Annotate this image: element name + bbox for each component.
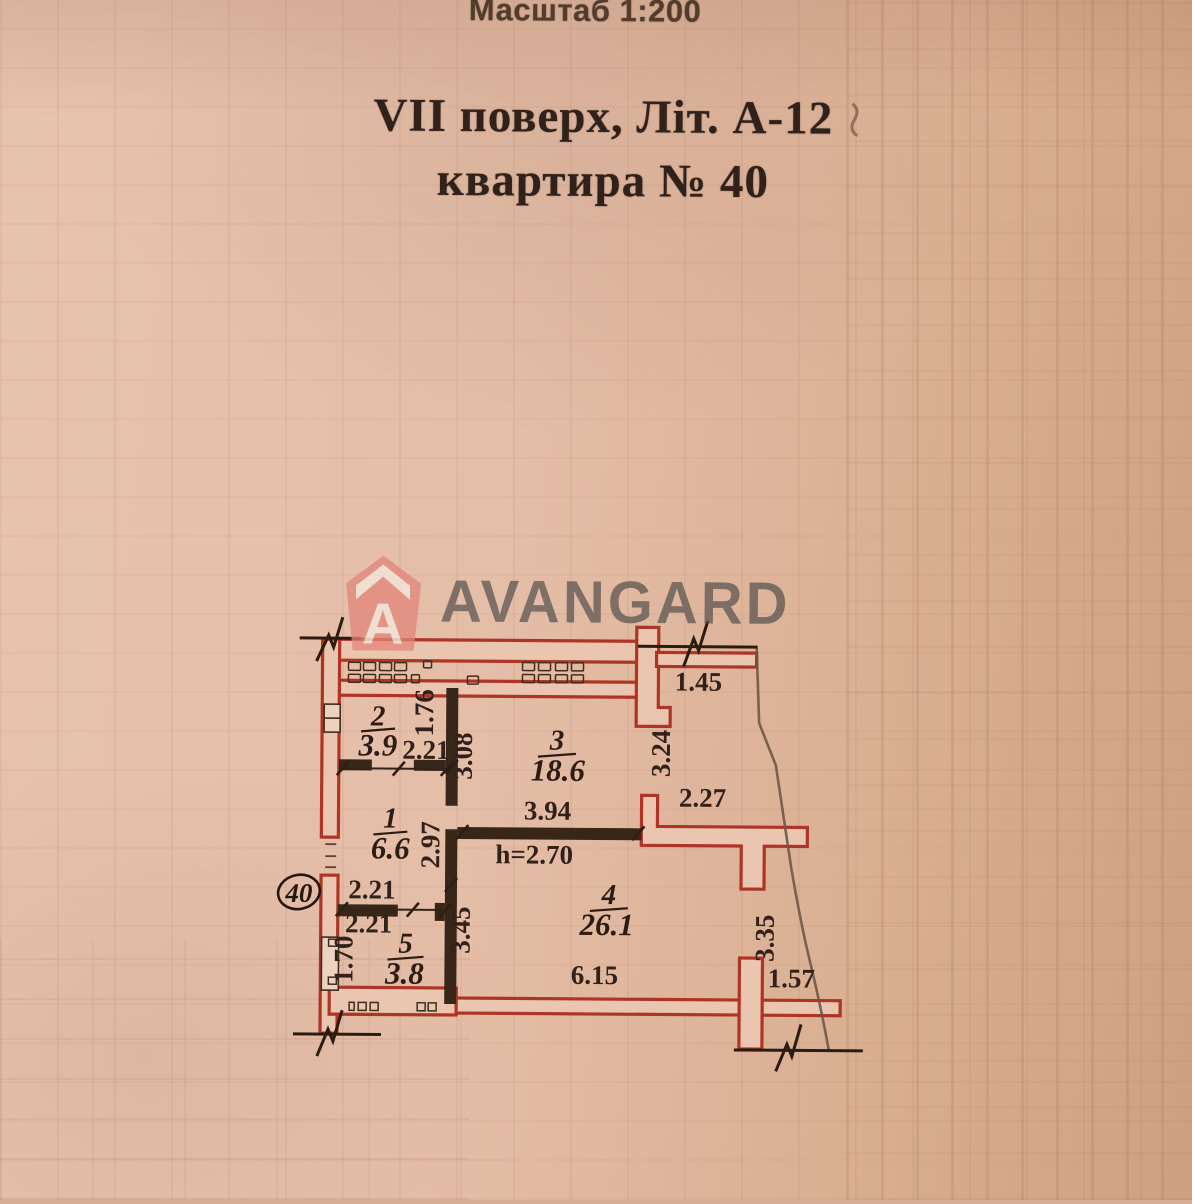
wall-pier-top xyxy=(636,627,671,726)
dim-room3-left-depth: 3.08 xyxy=(448,732,478,779)
dim-niche-width: 2.27 xyxy=(679,783,726,813)
wall-bottom-main xyxy=(456,998,840,1016)
dim-room5-width-upper: 2.21 xyxy=(348,874,395,904)
dim-balcony-right-depth: 3.35 xyxy=(749,914,779,961)
dim-room4-width: 6.15 xyxy=(571,960,618,990)
floor-plan-sheet: Масштаб 1:200 VII поверх, Літ. А-12 квар… xyxy=(0,0,1192,1204)
ceiling-height-note: h=2.70 xyxy=(495,839,573,870)
entrance-door-opening xyxy=(325,844,336,867)
dim-balcony-bottom-width: 1.57 xyxy=(768,963,815,993)
partition-room3-room4 xyxy=(457,827,641,840)
dim-balcony-top-depth: 3.24 xyxy=(646,730,676,777)
room-area: 6.6 xyxy=(371,830,410,865)
room-label-4: 4 26.1 xyxy=(578,879,634,942)
room-area: 26.1 xyxy=(578,907,633,942)
dim-balcony-top-width: 1.45 xyxy=(675,667,722,697)
dim-room2-width: 2.21 xyxy=(402,735,449,765)
room-label-1: 1 6.6 xyxy=(371,802,411,865)
wall-top-outer xyxy=(323,639,643,662)
balcony-window-top xyxy=(657,652,757,667)
dim-room3-width: 3.94 xyxy=(524,796,571,826)
room-area: 18.6 xyxy=(531,753,586,788)
photographed-document-page: Масштаб 1:200 VII поверх, Літ. А-12 квар… xyxy=(0,0,1192,1200)
wall-pier-bottom xyxy=(739,958,763,1049)
dim-hall-depth: 2.97 xyxy=(415,821,445,868)
ink-bleed-mark xyxy=(852,104,858,136)
apartment-number-badge: 40 xyxy=(275,871,323,913)
room-area: 3.8 xyxy=(384,956,424,991)
room-area: 3.9 xyxy=(357,727,397,762)
dim-room2-right-wall: 1.76 xyxy=(409,689,439,736)
room-label-3: 3 18.6 xyxy=(531,725,586,788)
dim-room5-width-lower: 2.21 xyxy=(345,908,392,938)
dim-room5-left-depth: 1.70 xyxy=(328,936,358,983)
wall-bottom-room5 xyxy=(329,987,456,1015)
wall-left-upper xyxy=(321,639,339,837)
floor-plan-drawing: 40 2 3.9 3 18.6 1 6.6 4 26.1 xyxy=(0,0,1192,1204)
badge-number: 40 xyxy=(284,878,313,908)
dim-room4-left-depth: 3.45 xyxy=(446,906,476,953)
room-label-2: 2 3.9 xyxy=(357,700,397,762)
